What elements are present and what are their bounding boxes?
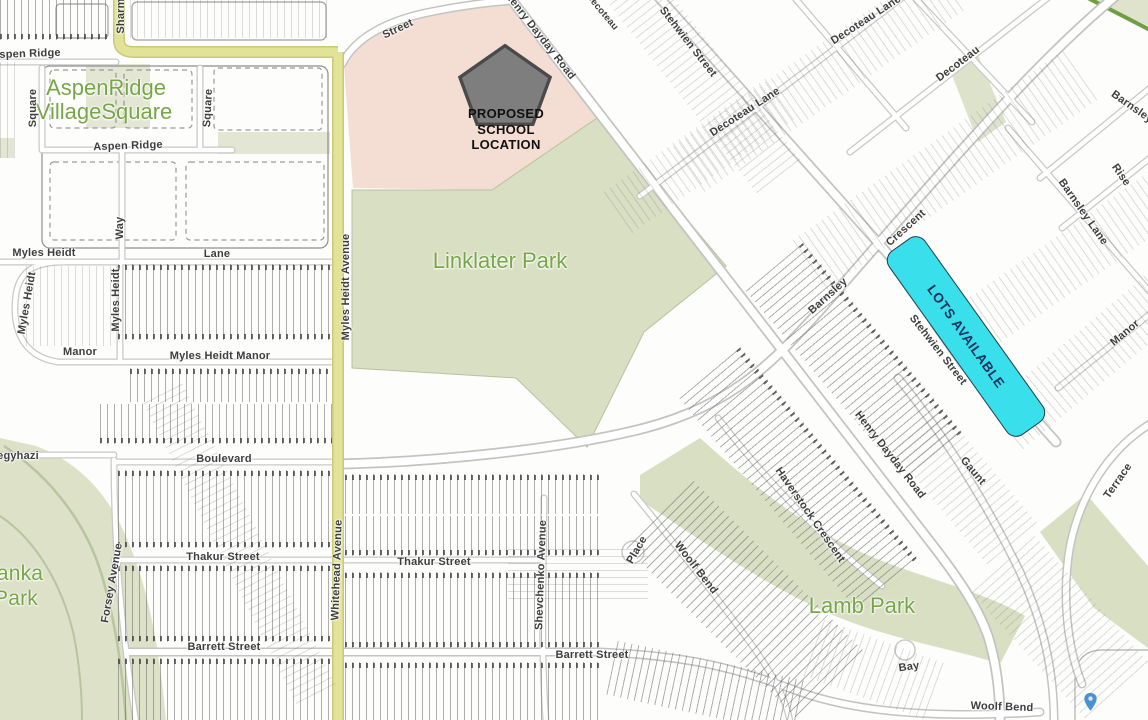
place-cul-de-sac — [622, 541, 644, 563]
school-label-line3: LOCATION — [433, 137, 579, 153]
map-canvas: LOTS AVAILABLE PROPOSED SCHOOL LOCATION … — [0, 0, 1148, 720]
lamb-park-area-east — [1040, 494, 1148, 648]
school-label-line2: SCHOOL — [433, 122, 579, 138]
bay-cul-de-sac — [895, 640, 915, 660]
anka-park-area — [0, 438, 166, 720]
villagesquare-green-square — [86, 64, 150, 128]
map-pin-icon[interactable] — [1083, 692, 1098, 717]
greenway-strip-left — [0, 138, 14, 158]
school-label-line1: PROPOSED — [433, 106, 579, 122]
proposed-school-label: PROPOSED SCHOOL LOCATION — [433, 106, 579, 153]
